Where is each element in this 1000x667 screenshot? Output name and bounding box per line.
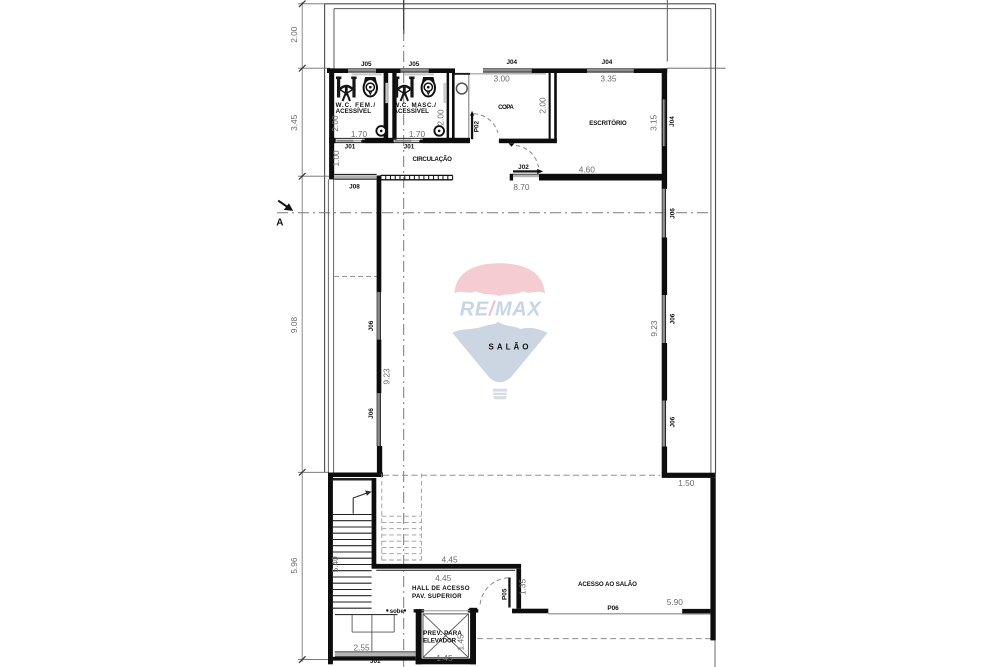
svg-text:5.96: 5.96 <box>289 557 299 574</box>
svg-text:P06: P06 <box>607 605 619 612</box>
svg-text:4.45: 4.45 <box>435 573 452 583</box>
svg-text:3.00: 3.00 <box>494 73 511 83</box>
svg-text:9.23: 9.23 <box>649 320 659 337</box>
svg-text:J05: J05 <box>409 61 420 68</box>
svg-text:J06: J06 <box>368 408 375 419</box>
svg-text:J05: J05 <box>361 61 372 68</box>
svg-text:2.00: 2.00 <box>330 115 340 132</box>
svg-text:1.35: 1.35 <box>518 579 528 596</box>
svg-text:J08: J08 <box>349 184 360 191</box>
svg-text:CIRCULAÇÃO: CIRCULAÇÃO <box>413 156 453 163</box>
svg-text:COPA: COPA <box>498 104 514 111</box>
svg-text:RE/MAX: RE/MAX <box>460 299 542 321</box>
svg-text:ACESSÍVEL: ACESSÍVEL <box>336 107 372 115</box>
svg-text:P02: P02 <box>474 120 481 132</box>
svg-text:1.70: 1.70 <box>351 129 368 139</box>
svg-text:2.00: 2.00 <box>289 26 299 43</box>
svg-text:5.40: 5.40 <box>330 556 340 573</box>
svg-text:ELEVADOR: ELEVADOR <box>423 637 457 644</box>
svg-text:2.00: 2.00 <box>538 97 548 114</box>
svg-text:ACESSÍVEL: ACESSÍVEL <box>394 107 430 115</box>
svg-text:3.45: 3.45 <box>289 114 299 131</box>
svg-text:J01: J01 <box>345 144 356 151</box>
svg-text:PAV. SUPERIOR: PAV. SUPERIOR <box>412 593 462 600</box>
svg-text:5.90: 5.90 <box>667 597 684 607</box>
svg-text:1.45: 1.45 <box>436 653 453 663</box>
svg-text:J04: J04 <box>506 59 517 66</box>
svg-text:J06: J06 <box>669 416 676 427</box>
svg-text:1.70: 1.70 <box>409 129 426 139</box>
svg-text:ACESSO AO SALÃO: ACESSO AO SALÃO <box>578 581 637 588</box>
svg-text:J01: J01 <box>370 658 381 665</box>
svg-text:J02: J02 <box>518 164 529 171</box>
svg-text:J01: J01 <box>404 144 415 151</box>
svg-text:J06: J06 <box>368 320 375 331</box>
svg-text:1.50: 1.50 <box>678 478 695 488</box>
svg-text:sobe: sobe <box>390 609 405 615</box>
svg-text:J04: J04 <box>602 59 613 66</box>
svg-text:4.60: 4.60 <box>579 164 596 174</box>
svg-text:J06: J06 <box>669 208 676 219</box>
svg-text:1.00: 1.00 <box>331 150 341 167</box>
svg-text:HALL DE ACESSO: HALL DE ACESSO <box>412 585 470 592</box>
svg-text:P05: P05 <box>502 588 509 600</box>
svg-text:SALÃO: SALÃO <box>489 343 532 352</box>
svg-text:8.70: 8.70 <box>513 182 530 192</box>
svg-text:J04: J04 <box>669 116 676 127</box>
svg-text:2.55: 2.55 <box>354 642 371 652</box>
svg-text:3.15: 3.15 <box>649 114 659 131</box>
svg-text:J06: J06 <box>669 313 676 324</box>
svg-text:A: A <box>276 218 283 229</box>
svg-text:ESCRITÓRIO: ESCRITÓRIO <box>589 119 627 127</box>
svg-text:9.23: 9.23 <box>381 368 391 385</box>
svg-text:9.08: 9.08 <box>289 317 299 334</box>
svg-text:2.00: 2.00 <box>436 109 446 126</box>
svg-text:1.45: 1.45 <box>456 634 466 651</box>
svg-text:3.35: 3.35 <box>600 73 617 83</box>
svg-text:4.45: 4.45 <box>442 555 459 565</box>
